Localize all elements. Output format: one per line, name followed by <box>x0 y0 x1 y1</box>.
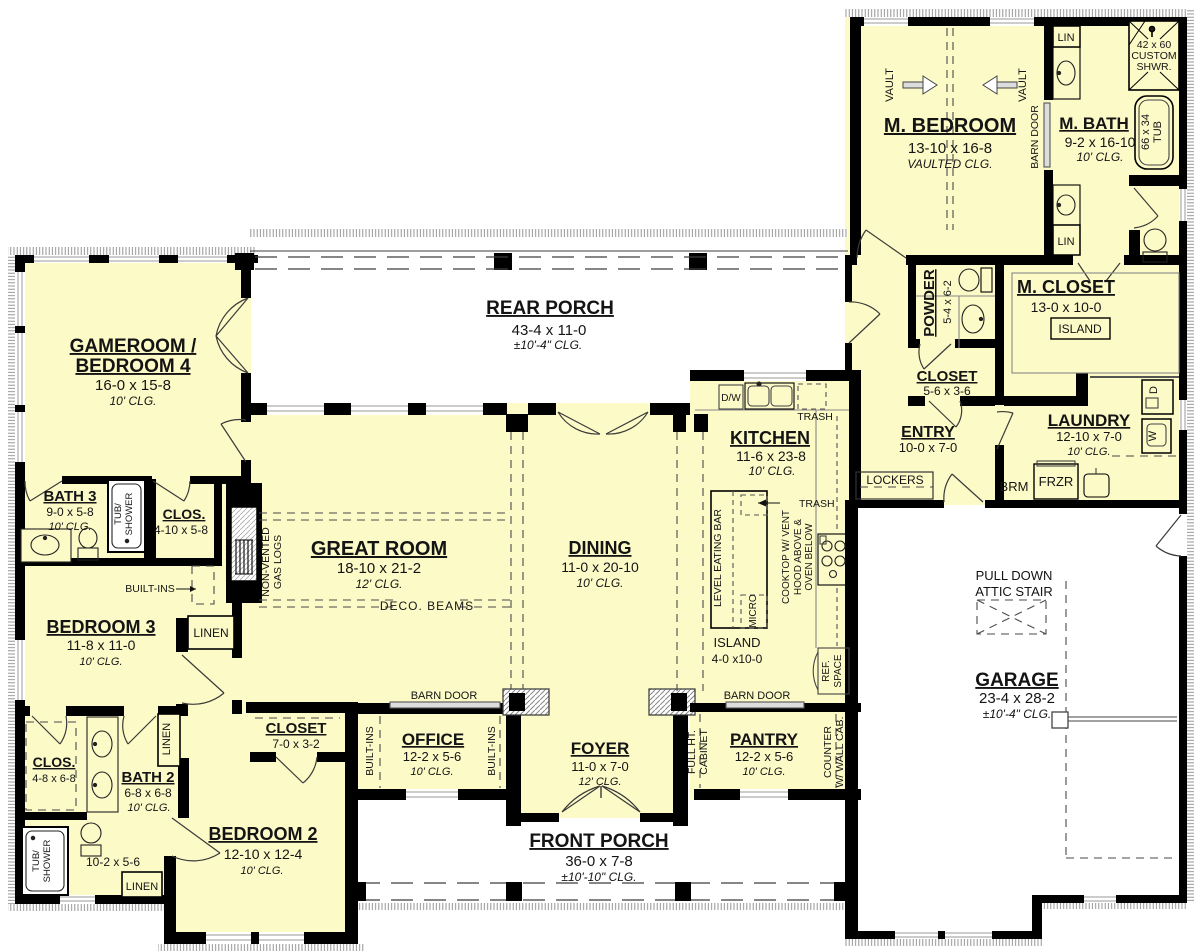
svg-text:BRM: BRM <box>1000 479 1029 494</box>
svg-text:COUNTER: COUNTER <box>822 726 834 778</box>
svg-text:BUILT-INS: BUILT-INS <box>125 583 174 595</box>
svg-text:23-4 x 28-2: 23-4 x 28-2 <box>979 690 1055 707</box>
svg-text:LINEN: LINEN <box>193 626 228 640</box>
svg-text:LOCKERS: LOCKERS <box>866 473 923 487</box>
svg-text:12' CLG.: 12' CLG. <box>578 776 621 788</box>
svg-text:BARN DOOR: BARN DOOR <box>724 690 791 702</box>
svg-text:11-6 x 23-8: 11-6 x 23-8 <box>736 448 806 464</box>
svg-text:5-4 x 6-2: 5-4 x 6-2 <box>942 280 954 323</box>
svg-text:PULL DOWN: PULL DOWN <box>976 568 1053 583</box>
svg-text:OVEN BELOW: OVEN BELOW <box>804 523 815 591</box>
svg-text:REF.: REF. <box>821 660 832 682</box>
svg-text:LIN: LIN <box>1057 236 1074 248</box>
svg-text:TUB: TUB <box>1152 121 1164 143</box>
svg-text:POWDER: POWDER <box>921 269 938 337</box>
svg-text:OFFICE: OFFICE <box>402 730 464 749</box>
svg-text:GAMEROOM /: GAMEROOM / <box>70 336 197 357</box>
svg-text:ATTIC STAIR: ATTIC STAIR <box>975 584 1053 599</box>
svg-text:BATH 2: BATH 2 <box>121 769 174 786</box>
svg-text:LIN: LIN <box>1057 32 1074 44</box>
svg-text:COOKTOP W/ VENT: COOKTOP W/ VENT <box>781 510 792 604</box>
svg-text:ISLAND: ISLAND <box>714 635 761 650</box>
svg-text:10-0 x 7-0: 10-0 x 7-0 <box>899 440 958 455</box>
svg-text:18-10 x 21-2: 18-10 x 21-2 <box>337 560 421 577</box>
svg-text:BUILT-INS: BUILT-INS <box>486 726 498 775</box>
svg-text:MICRO: MICRO <box>748 594 759 628</box>
svg-text:GARAGE: GARAGE <box>975 670 1058 691</box>
svg-text:9-2 x 16-10: 9-2 x 16-10 <box>1065 134 1136 150</box>
svg-text:LINEN: LINEN <box>126 881 158 893</box>
svg-text:10' CLG.: 10' CLG. <box>110 394 157 408</box>
svg-text:BUILT-INS: BUILT-INS <box>364 726 376 775</box>
svg-text:D: D <box>1148 386 1160 394</box>
svg-text:10-2 x 5-6: 10-2 x 5-6 <box>86 855 140 869</box>
svg-text:LAUNDRY: LAUNDRY <box>1048 411 1131 430</box>
svg-text:4-0 x10-0: 4-0 x10-0 <box>712 652 763 666</box>
svg-text:16-0 x 15-8: 16-0 x 15-8 <box>95 377 171 394</box>
svg-text:CLOS.: CLOS. <box>33 754 76 770</box>
svg-text:CLOSET: CLOSET <box>266 720 327 737</box>
svg-text:BEDROOM 2: BEDROOM 2 <box>208 824 317 844</box>
svg-text:11-0 x 7-0: 11-0 x 7-0 <box>571 759 629 774</box>
svg-text:CABINET: CABINET <box>698 729 710 775</box>
svg-text:LEVEL EATING BAR: LEVEL EATING BAR <box>712 509 724 607</box>
svg-text:10' CLG.: 10' CLG. <box>577 576 624 590</box>
svg-text:HOOD ABOVE &: HOOD ABOVE & <box>793 519 804 595</box>
svg-text:12-10 x 12-4: 12-10 x 12-4 <box>224 846 303 862</box>
svg-text:43-4 x 11-0: 43-4 x 11-0 <box>512 322 587 339</box>
svg-text:5-6 x 3-6: 5-6 x 3-6 <box>923 384 971 398</box>
svg-text:VAULT: VAULT <box>1017 68 1029 102</box>
svg-text:ENTRY: ENTRY <box>901 424 955 441</box>
svg-text:SHOWER: SHOWER <box>124 492 135 535</box>
svg-text:NON-VENTED: NON-VENTED <box>260 527 272 597</box>
svg-text:SPACE: SPACE <box>833 654 844 687</box>
svg-text:TUB/: TUB/ <box>31 850 42 872</box>
svg-text:13-0 x 10-0: 13-0 x 10-0 <box>1031 299 1102 315</box>
svg-text:66 x 34: 66 x 34 <box>1140 114 1152 150</box>
svg-text:W: W <box>1147 430 1159 441</box>
svg-text:DECO. BEAMS: DECO. BEAMS <box>380 599 474 613</box>
svg-text:CLOSET: CLOSET <box>917 368 978 385</box>
svg-text:12-2 x 5-6: 12-2 x 5-6 <box>735 749 794 764</box>
svg-text:6-8 x 6-8: 6-8 x 6-8 <box>124 786 172 800</box>
svg-text:±10'-10" CLG.: ±10'-10" CLG. <box>561 870 636 884</box>
svg-text:11-0 x 20-10: 11-0 x 20-10 <box>561 559 639 575</box>
svg-text:9-0 x 5-8: 9-0 x 5-8 <box>46 505 94 519</box>
svg-text:±10'-4" CLG.: ±10'-4" CLG. <box>514 338 583 352</box>
svg-text:LINEN: LINEN <box>161 723 173 755</box>
svg-text:M. BEDROOM: M. BEDROOM <box>884 115 1016 137</box>
svg-text:10' CLG.: 10' CLG. <box>1067 446 1110 458</box>
svg-text:FRZR: FRZR <box>1039 474 1074 489</box>
svg-text:4-8 x 6-8: 4-8 x 6-8 <box>32 773 75 785</box>
svg-text:10' CLG.: 10' CLG. <box>410 766 453 778</box>
svg-text:TRASH: TRASH <box>797 411 833 423</box>
svg-text:10' CLG.: 10' CLG. <box>48 521 91 533</box>
svg-text:10' CLG.: 10' CLG. <box>240 865 283 877</box>
svg-text:W/ WALL CAB.: W/ WALL CAB. <box>834 717 846 788</box>
svg-text:4-10 x 5-8: 4-10 x 5-8 <box>154 523 208 537</box>
svg-text:10' CLG.: 10' CLG. <box>1077 150 1124 164</box>
svg-text:FOYER: FOYER <box>571 739 630 758</box>
svg-text:PANTRY: PANTRY <box>730 730 799 749</box>
svg-text:REAR PORCH: REAR PORCH <box>486 298 614 319</box>
svg-text:TUB/: TUB/ <box>113 503 124 525</box>
svg-text:12' CLG.: 12' CLG. <box>356 577 403 591</box>
svg-text:M. CLOSET: M. CLOSET <box>1017 277 1115 297</box>
svg-text:CLOS.: CLOS. <box>163 506 206 522</box>
svg-text:BEDROOM 3: BEDROOM 3 <box>46 617 155 637</box>
svg-text:FULL HT.: FULL HT. <box>686 730 698 774</box>
svg-text:FRONT PORCH: FRONT PORCH <box>529 831 668 852</box>
svg-text:10' CLG.: 10' CLG. <box>127 802 170 814</box>
svg-text:BARN DOOR: BARN DOOR <box>411 690 478 702</box>
svg-text:VAULT: VAULT <box>884 68 896 102</box>
svg-text:BATH 3: BATH 3 <box>43 488 96 505</box>
svg-text:GAS LOGS: GAS LOGS <box>272 535 284 589</box>
svg-text:TRASH: TRASH <box>799 498 835 510</box>
svg-text:±10'-4" CLG.: ±10'-4" CLG. <box>983 707 1052 721</box>
svg-text:11-8 x 11-0: 11-8 x 11-0 <box>67 637 136 653</box>
svg-text:10' CLG.: 10' CLG. <box>79 656 122 668</box>
svg-text:DINING: DINING <box>569 538 632 558</box>
svg-text:KITCHEN: KITCHEN <box>730 428 810 448</box>
svg-text:SHWR.: SHWR. <box>1137 61 1172 73</box>
svg-text:GREAT ROOM: GREAT ROOM <box>311 538 447 560</box>
svg-text:36-0 x 7-8: 36-0 x 7-8 <box>565 853 633 870</box>
svg-text:D/W: D/W <box>721 393 741 404</box>
svg-text:12-10 x 7-0: 12-10 x 7-0 <box>1056 429 1122 444</box>
svg-text:M. BATH: M. BATH <box>1059 114 1129 133</box>
svg-text:VAULTED CLG.: VAULTED CLG. <box>907 157 992 171</box>
svg-text:10' CLG.: 10' CLG. <box>749 464 796 478</box>
svg-text:ISLAND: ISLAND <box>1058 322 1102 336</box>
svg-text:7-0 x 3-2: 7-0 x 3-2 <box>272 737 320 751</box>
svg-text:BEDROOM 4: BEDROOM 4 <box>75 356 191 377</box>
svg-text:BARN DOOR: BARN DOOR <box>1029 105 1041 169</box>
svg-text:13-10 x 16-8: 13-10 x 16-8 <box>908 140 992 157</box>
svg-text:12-2 x 5-6: 12-2 x 5-6 <box>403 749 462 764</box>
svg-text:10' CLG.: 10' CLG. <box>742 766 785 778</box>
svg-text:SHOWER: SHOWER <box>42 839 53 882</box>
